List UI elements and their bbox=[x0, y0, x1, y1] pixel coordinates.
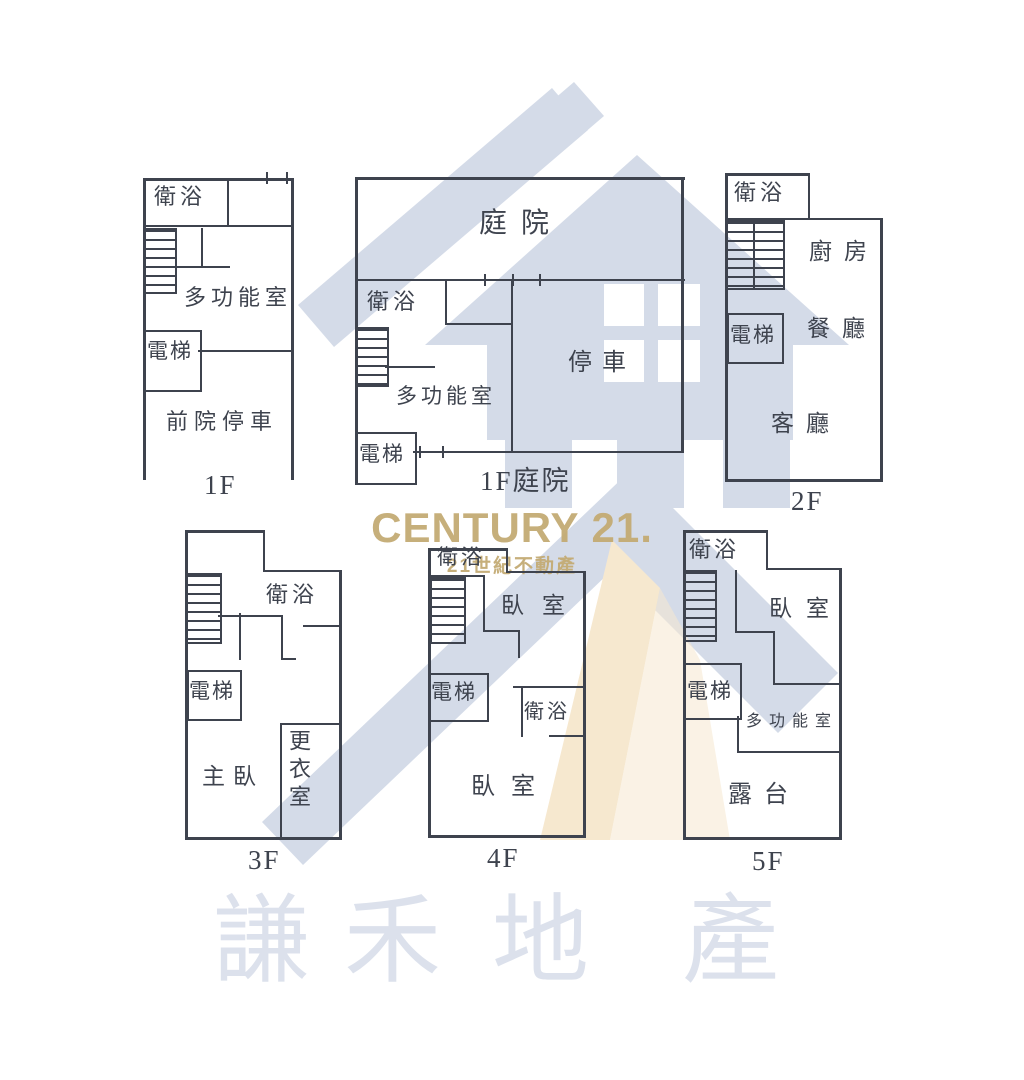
room-label-walk-in-closet: 更衣室 bbox=[287, 729, 309, 813]
company-watermark-char: 謙 bbox=[213, 861, 310, 1002]
wall bbox=[506, 571, 585, 573]
wall bbox=[263, 530, 265, 572]
wall bbox=[683, 530, 768, 533]
room-label-bath: 衛浴 bbox=[524, 702, 570, 722]
room-label-dining: 餐廳 bbox=[807, 317, 877, 340]
door-tick bbox=[442, 446, 444, 458]
room-label-elevator: 電梯 bbox=[147, 341, 193, 362]
century21-wordmark: CENTURY 21. bbox=[352, 504, 672, 552]
house-leg-icon bbox=[723, 440, 790, 508]
floor-label-3f: 3F bbox=[248, 845, 281, 876]
stairs-icon bbox=[185, 573, 222, 644]
wall bbox=[773, 631, 775, 685]
wall bbox=[239, 613, 241, 660]
room-label-bath: 衛浴 bbox=[689, 539, 739, 561]
room-label-bath: 衛浴 bbox=[734, 182, 786, 204]
wall bbox=[445, 323, 512, 325]
room-label-bedroom: 臥室 bbox=[501, 594, 583, 617]
wall bbox=[725, 173, 810, 176]
room-label-bedroom: 臥室 bbox=[769, 597, 843, 620]
wall bbox=[227, 178, 229, 227]
door-tick bbox=[419, 446, 421, 458]
wall bbox=[428, 835, 586, 838]
room-label-courtyard: 庭院 bbox=[479, 210, 563, 238]
room-label-multipurpose: 多功能室 bbox=[746, 714, 838, 730]
wall bbox=[483, 577, 485, 632]
door-tick bbox=[266, 172, 268, 184]
wall bbox=[583, 571, 586, 838]
wall bbox=[511, 279, 513, 453]
wall bbox=[143, 225, 294, 227]
wall bbox=[280, 723, 282, 839]
room-label-parking: 停車 bbox=[568, 351, 636, 375]
door-tick bbox=[286, 172, 288, 184]
room-label-elevator: 電梯 bbox=[687, 681, 733, 702]
floor-label-5f: 5F bbox=[752, 846, 785, 877]
wall bbox=[549, 735, 585, 737]
wall bbox=[291, 178, 294, 480]
room-label-elevator: 電梯 bbox=[189, 681, 235, 702]
wall bbox=[513, 686, 585, 688]
company-watermark-char: 禾 bbox=[344, 861, 441, 1002]
stairs-icon bbox=[143, 228, 177, 294]
wall bbox=[445, 279, 447, 325]
wall bbox=[766, 568, 842, 570]
stairs-icon bbox=[753, 220, 785, 290]
room-label-multipurpose: 多功能室 bbox=[396, 386, 496, 407]
wall bbox=[808, 173, 810, 220]
wall bbox=[518, 630, 520, 658]
room-label-bath: 衛浴 bbox=[154, 186, 206, 208]
wall bbox=[281, 615, 283, 660]
floor-label-1f: 1F bbox=[204, 470, 237, 501]
room-label-terrace: 露台 bbox=[728, 783, 800, 807]
wall bbox=[880, 218, 883, 482]
wall bbox=[766, 530, 768, 570]
room-label-bath: 衛浴 bbox=[437, 547, 485, 568]
wall bbox=[355, 279, 685, 281]
wall bbox=[198, 350, 294, 352]
room-label-elevator: 電梯 bbox=[431, 682, 477, 703]
wall bbox=[218, 615, 283, 617]
room-label-bedroom: 臥室 bbox=[471, 775, 551, 799]
wall bbox=[737, 751, 841, 753]
wall bbox=[143, 178, 294, 181]
wall bbox=[281, 658, 296, 660]
room-label-elevator: 電梯 bbox=[359, 444, 405, 465]
wall bbox=[173, 266, 230, 268]
century21-chinese-wordmark: 21世紀不動產 bbox=[352, 551, 672, 578]
wall bbox=[143, 178, 146, 480]
wall bbox=[263, 570, 342, 572]
room-label-multipurpose: 多功能室 bbox=[184, 287, 292, 309]
floor-label-4f: 4F bbox=[487, 843, 520, 874]
door-tick bbox=[539, 274, 541, 286]
room-label-elevator: 電梯 bbox=[730, 325, 776, 346]
wall bbox=[506, 548, 508, 573]
window-mullion-icon bbox=[604, 326, 700, 340]
floor-plan-sheet: CENTURY 21. 21世紀不動產 謙 禾 地 產 衛浴 多功能室 電梯 前… bbox=[0, 0, 1024, 1080]
floor-label-2f: 2F bbox=[791, 486, 824, 517]
wall bbox=[185, 837, 342, 840]
wall bbox=[185, 530, 265, 533]
wall bbox=[735, 570, 737, 633]
room-label-bath: 衛浴 bbox=[367, 291, 419, 313]
wall bbox=[773, 683, 841, 685]
wall bbox=[683, 837, 842, 840]
floor-label-1f-courtyard: 1F庭院 bbox=[480, 459, 571, 498]
wall bbox=[339, 570, 342, 840]
wall bbox=[521, 686, 523, 737]
wall bbox=[355, 177, 685, 180]
wall bbox=[385, 366, 435, 368]
room-label-living: 客廳 bbox=[771, 412, 841, 435]
room-label-kitchen: 廚房 bbox=[809, 240, 879, 263]
wall bbox=[413, 451, 683, 453]
wall bbox=[201, 228, 203, 268]
stairs-icon bbox=[430, 577, 466, 644]
company-watermark-char: 產 bbox=[682, 861, 779, 1002]
wall bbox=[737, 716, 739, 753]
door-tick bbox=[484, 274, 486, 286]
wall bbox=[280, 723, 342, 725]
room-label-master-bedroom: 主臥 bbox=[202, 765, 264, 788]
stairs-icon bbox=[725, 220, 755, 290]
wall bbox=[725, 479, 883, 482]
wall bbox=[681, 177, 684, 453]
room-label-bath: 衛浴 bbox=[266, 584, 318, 606]
company-watermark-char: 地 bbox=[492, 861, 589, 1002]
stairs-icon bbox=[355, 327, 389, 387]
stairs-icon bbox=[683, 570, 717, 642]
wall bbox=[483, 630, 520, 632]
wall bbox=[735, 631, 775, 633]
room-label-front-parking: 前院停車 bbox=[166, 411, 278, 433]
wall bbox=[303, 625, 341, 627]
